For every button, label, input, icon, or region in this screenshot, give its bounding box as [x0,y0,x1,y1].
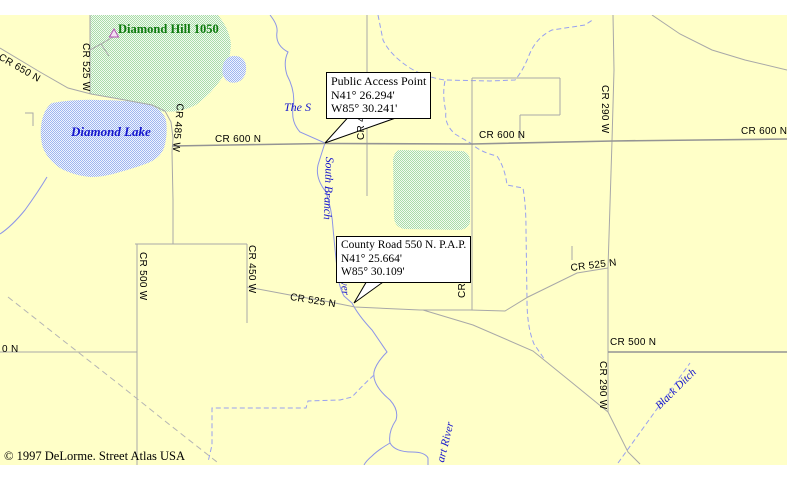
copyright-notice: © 1997 DeLorme. Street Atlas USA [4,449,185,464]
callout-longitude: W85° 30.109' [341,266,466,280]
callout-county-road-550: County Road 550 N. P.A.P. N41° 25.664' W… [336,236,471,283]
callout-latitude: N41° 26.294' [331,89,426,103]
callout-longitude: W85° 30.241' [331,102,426,116]
callout-title: County Road 550 N. P.A.P. [341,239,466,253]
forest-area [393,150,470,230]
callout-public-access-point: Public Access Point N41° 26.294' W85° 30… [326,72,431,119]
callout-title: Public Access Point [331,75,426,89]
map-window: CR 650 NCR 525 WCR 485 WCR 600 NCR 600 N… [0,0,789,479]
callout-latitude: N41° 25.664' [341,253,466,267]
